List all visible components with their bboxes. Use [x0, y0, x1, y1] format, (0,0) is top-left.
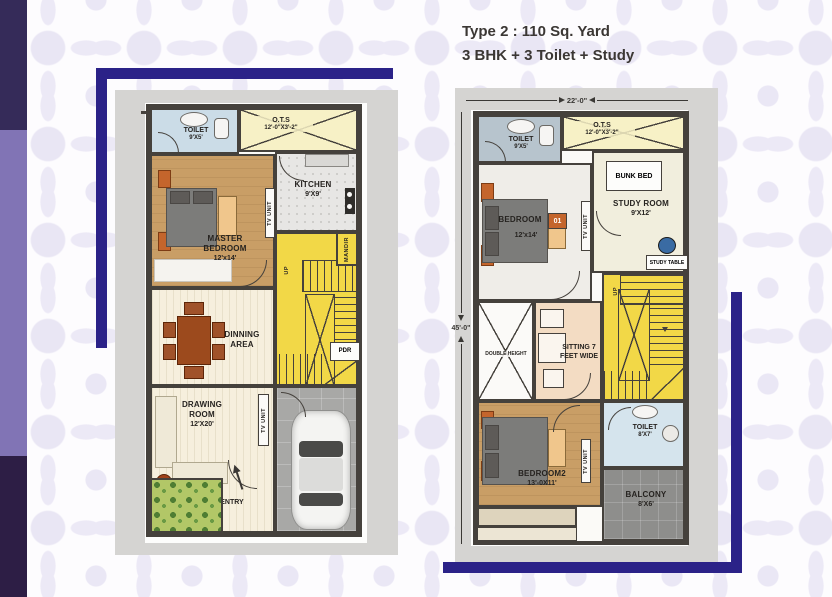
left-accent-bar-top: [0, 0, 27, 130]
bedside-bench: [548, 429, 566, 467]
tv-unit-label: TV UNIT: [583, 214, 589, 239]
ground-frame-left: [96, 68, 107, 348]
car-windshield: [299, 441, 343, 457]
door-arc: [240, 260, 267, 287]
height-dimension-text: 45'-0": [452, 325, 471, 332]
dimension-line: [466, 100, 557, 101]
ground-dinning-label: DINNING AREA: [210, 330, 274, 350]
arrow-up-icon: [458, 336, 464, 342]
first-floor-sheet: TOILET 9'X5' O.T.S 12'-0"X3'-2" BUNK BED: [471, 110, 688, 546]
bedside-bench: [218, 196, 237, 236]
pillow: [485, 425, 499, 450]
tv-unit-label: TV UNIT: [267, 201, 273, 226]
ground-kitchen-label: KITCHEN 9'X9': [285, 180, 341, 199]
arrow-down-icon: [458, 315, 464, 321]
ground-master-label: MASTER BEDROOM 12'x14': [190, 234, 260, 263]
chair-icon: [163, 344, 176, 360]
first-balcony-label: BALCONY 8'X6': [616, 490, 676, 509]
first-ots-label: O.T.S 12'-0"X3'-2": [569, 121, 635, 137]
study-table: STUDY TABLE: [646, 255, 688, 270]
first-toilet-top-label: TOILET 9'X5': [491, 135, 551, 151]
bunk-bed: BUNK BED: [606, 161, 662, 191]
stair-diagonal: [323, 360, 358, 386]
door-arc: [564, 373, 591, 400]
shelf: [543, 369, 564, 388]
burner-icon: [347, 192, 352, 197]
tv-unit-label: TV UNIT: [261, 408, 267, 433]
bedroom1-number-text: 01: [554, 217, 562, 226]
ground-parking: [275, 386, 358, 533]
left-accent-bar-middle: [0, 130, 27, 456]
width-dimension: 22'-0": [466, 94, 688, 106]
arrow-shaft: [236, 472, 243, 490]
car-rear-window: [299, 493, 343, 506]
dining-table-icon: [177, 316, 211, 365]
arrow-left-icon: [589, 97, 595, 103]
car-roof: [299, 458, 343, 491]
tv-unit: TV UNIT: [258, 394, 269, 446]
first-floor-panel: TOILET 9'X5' O.T.S 12'-0"X3'-2" BUNK BED: [455, 88, 718, 562]
first-floor-plan: TOILET 9'X5' O.T.S 12'-0"X3'-2" BUNK BED: [473, 111, 689, 545]
stair-diagonal: [650, 367, 685, 401]
mandir-label: MANDIR: [344, 237, 350, 262]
first-frame-right: [731, 292, 742, 573]
first-double-height: DOUBLE HEIGHT: [477, 301, 534, 401]
dimension-line: [461, 112, 462, 313]
stair-treads: [279, 354, 323, 386]
first-bedroom1-room: BEDROOM 01 12'x14' TV UNIT: [477, 163, 592, 301]
tv-unit: TV UNIT: [581, 439, 591, 483]
first-porch-step: [477, 527, 577, 541]
first-bedroom1-number: 01: [548, 213, 567, 229]
first-bedroom1-label: BEDROOM: [493, 215, 547, 225]
ground-toilet-room: TOILET 9'X5': [150, 108, 239, 154]
sofa-icon: [155, 396, 177, 468]
first-stairs: UP: [602, 273, 685, 401]
stair-treads: [604, 371, 650, 401]
burner-icon: [347, 204, 352, 209]
first-porch: [477, 507, 577, 527]
ground-kitchen-room: KITCHEN 9'X9': [275, 152, 358, 232]
stair-treads: [650, 305, 685, 365]
stair-treads: [335, 296, 358, 340]
first-toilet-bottom-label: TOILET 8'X7': [622, 423, 668, 439]
title-line1: Type 2 : 110 Sq. Yard: [462, 20, 634, 44]
door-arc: [281, 392, 306, 417]
chair-icon: [184, 366, 204, 379]
first-toilet-bottom-room: TOILET 8'X7': [602, 401, 685, 468]
door-arc: [596, 211, 621, 236]
chair-icon: [163, 322, 176, 338]
tv-unit: TV UNIT: [581, 201, 591, 251]
ground-ots-room: O.T.S 12'-0"X3'-2": [239, 108, 358, 152]
ground-pdr-room: PDR: [330, 342, 360, 361]
tv-unit-label: TV UNIT: [583, 449, 589, 474]
door-arc: [551, 271, 580, 300]
pdr-label: PDR: [339, 348, 352, 355]
first-bedroom2-label: BEDROOM2 13'-0X11': [505, 469, 579, 488]
first-sitting-room: SITTING 7 FEET WIDE: [534, 301, 602, 401]
title-line2: 3 BHK + 3 Toilet + Study: [462, 44, 634, 68]
ground-master-bedroom-room: TV UNIT MASTER BEDROOM 12'x14': [150, 154, 275, 288]
ground-ots-label: O.T.S 12'-0"X3'-2": [249, 116, 313, 132]
pillow: [193, 191, 213, 204]
ground-frame-top: [96, 68, 393, 79]
pillow: [170, 191, 190, 204]
car-icon: [291, 410, 351, 530]
up-text: UP: [284, 266, 290, 275]
first-bedroom1-dim: 12'x14': [499, 231, 553, 240]
kitchen-counter: [305, 154, 349, 167]
dimension-line: [597, 100, 688, 101]
first-toilet-top-room: TOILET 9'X5': [477, 115, 562, 163]
first-bedroom2-room: BEDROOM2 13'-0X11' TV UNIT: [477, 401, 602, 507]
bunk-bed-label: BUNK BED: [616, 172, 653, 181]
sink-icon: [632, 405, 658, 419]
first-balcony-room: BALCONY 8'X6': [602, 468, 685, 541]
ground-up-label: UP: [281, 262, 293, 284]
ground-floor-sheet: TOILET 9'X5' O.T.S 12'-0"X3'-2": [145, 103, 367, 543]
door-arc: [279, 156, 304, 181]
pillow: [485, 232, 499, 256]
sink-icon: [507, 119, 535, 134]
wardrobe: [158, 170, 171, 188]
ground-toilet-label: TOILET 9'X5': [166, 126, 226, 142]
shelf: [540, 309, 564, 328]
width-dimension-text: 22'-0": [567, 96, 587, 105]
stair-arrow: [662, 327, 668, 332]
first-study-room: BUNK BED STUDY ROOM 9'X12' STUDY TABLE: [592, 151, 685, 273]
ground-floor-panel: TOILET 9'X5' O.T.S 12'-0"X3'-2": [115, 90, 398, 555]
page-title: Type 2 : 110 Sq. Yard 3 BHK + 3 Toilet +…: [462, 20, 634, 68]
first-double-height-label: DOUBLE HEIGHT: [480, 351, 532, 357]
first-ots-room: O.T.S 12'-0"X3'-2": [562, 115, 685, 151]
ground-garden: [150, 478, 223, 533]
ground-floor-plan: TOILET 9'X5' O.T.S 12'-0"X3'-2": [146, 104, 362, 537]
left-accent-bar-bottom: [0, 456, 27, 597]
chair-icon: [184, 302, 204, 315]
study-table-label: STUDY TABLE: [650, 260, 685, 266]
page: Type 2 : 110 Sq. Yard 3 BHK + 3 Toilet +…: [0, 0, 832, 597]
stair-x-brace: [618, 289, 650, 381]
door-arc: [553, 405, 580, 432]
ground-dinning-room: DINNING AREA: [150, 288, 275, 386]
pillow: [485, 453, 499, 478]
arrow-right-icon: [559, 97, 565, 103]
ground-mandir: MANDIR: [336, 232, 358, 266]
dimension-line: [461, 344, 462, 545]
study-chair-icon: [658, 237, 676, 254]
first-sitting-label: SITTING 7 FEET WIDE: [556, 343, 602, 361]
first-frame-bottom: [443, 562, 742, 573]
tv-unit: TV UNIT: [265, 188, 275, 238]
height-dimension: 45'-0": [451, 112, 471, 544]
sink-icon: [180, 112, 208, 127]
